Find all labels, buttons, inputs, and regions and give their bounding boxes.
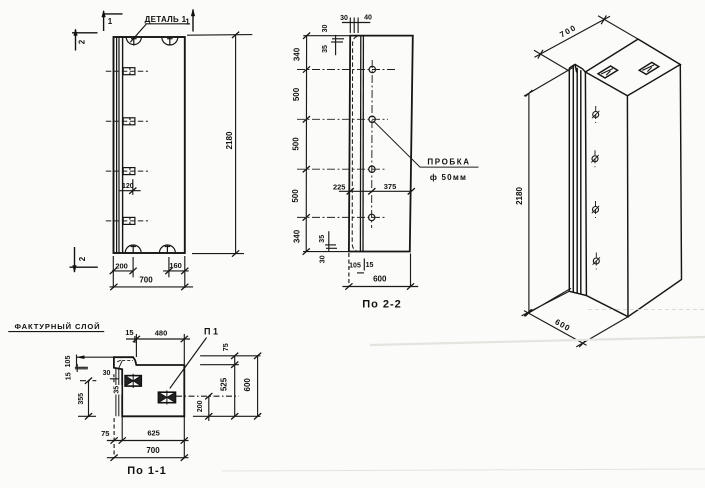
svg-text:ДЕТАЛЬ 1: ДЕТАЛЬ 1	[145, 15, 187, 24]
svg-text:120: 120	[122, 183, 134, 190]
svg-text:По 1-1: По 1-1	[127, 465, 167, 477]
svg-text:ФАКТУРНЫЙ СЛОЙ: ФАКТУРНЫЙ СЛОЙ	[14, 322, 100, 331]
svg-text:ПРОБКА: ПРОБКА	[427, 158, 470, 167]
svg-text:625: 625	[147, 429, 160, 438]
svg-text:2180: 2180	[225, 131, 234, 149]
svg-text:340: 340	[293, 47, 302, 61]
svg-text:П 1: П 1	[204, 327, 218, 337]
svg-text:340: 340	[293, 229, 302, 243]
svg-text:600: 600	[243, 378, 252, 392]
svg-text:500: 500	[291, 189, 300, 203]
svg-text:2: 2	[78, 39, 87, 44]
svg-text:500: 500	[292, 87, 301, 101]
svg-text:105: 105	[65, 356, 72, 368]
svg-text:480: 480	[155, 329, 168, 338]
svg-text:1: 1	[108, 17, 113, 26]
svg-text:200: 200	[115, 261, 128, 270]
svg-text:2: 2	[78, 256, 87, 261]
svg-text:160: 160	[169, 261, 182, 270]
svg-text:700: 700	[146, 446, 160, 455]
svg-text:15: 15	[65, 372, 72, 380]
svg-text:35: 35	[319, 235, 326, 243]
svg-text:500: 500	[292, 137, 301, 151]
svg-text:105: 105	[349, 262, 361, 269]
svg-text:35: 35	[114, 386, 121, 394]
svg-text:225: 225	[333, 182, 346, 191]
svg-text:ф 50мм: ф 50мм	[430, 173, 467, 182]
svg-text:2180: 2180	[515, 187, 524, 205]
svg-text:40: 40	[364, 15, 372, 22]
svg-text:375: 375	[384, 182, 397, 191]
svg-text:30: 30	[320, 255, 327, 263]
svg-text:15: 15	[125, 328, 133, 337]
svg-text:700: 700	[139, 276, 153, 285]
svg-text:600: 600	[373, 274, 387, 283]
svg-text:30: 30	[340, 15, 348, 22]
svg-text:По 2-2: По 2-2	[362, 299, 402, 311]
svg-text:30: 30	[322, 25, 329, 33]
svg-text:35: 35	[322, 45, 329, 53]
svg-text:200: 200	[197, 400, 204, 412]
svg-text:525: 525	[220, 377, 229, 391]
svg-text:355: 355	[78, 393, 85, 405]
svg-text:15: 15	[366, 262, 374, 269]
svg-text:75: 75	[101, 429, 109, 438]
svg-text:75: 75	[223, 343, 230, 351]
svg-text:30: 30	[103, 370, 111, 377]
